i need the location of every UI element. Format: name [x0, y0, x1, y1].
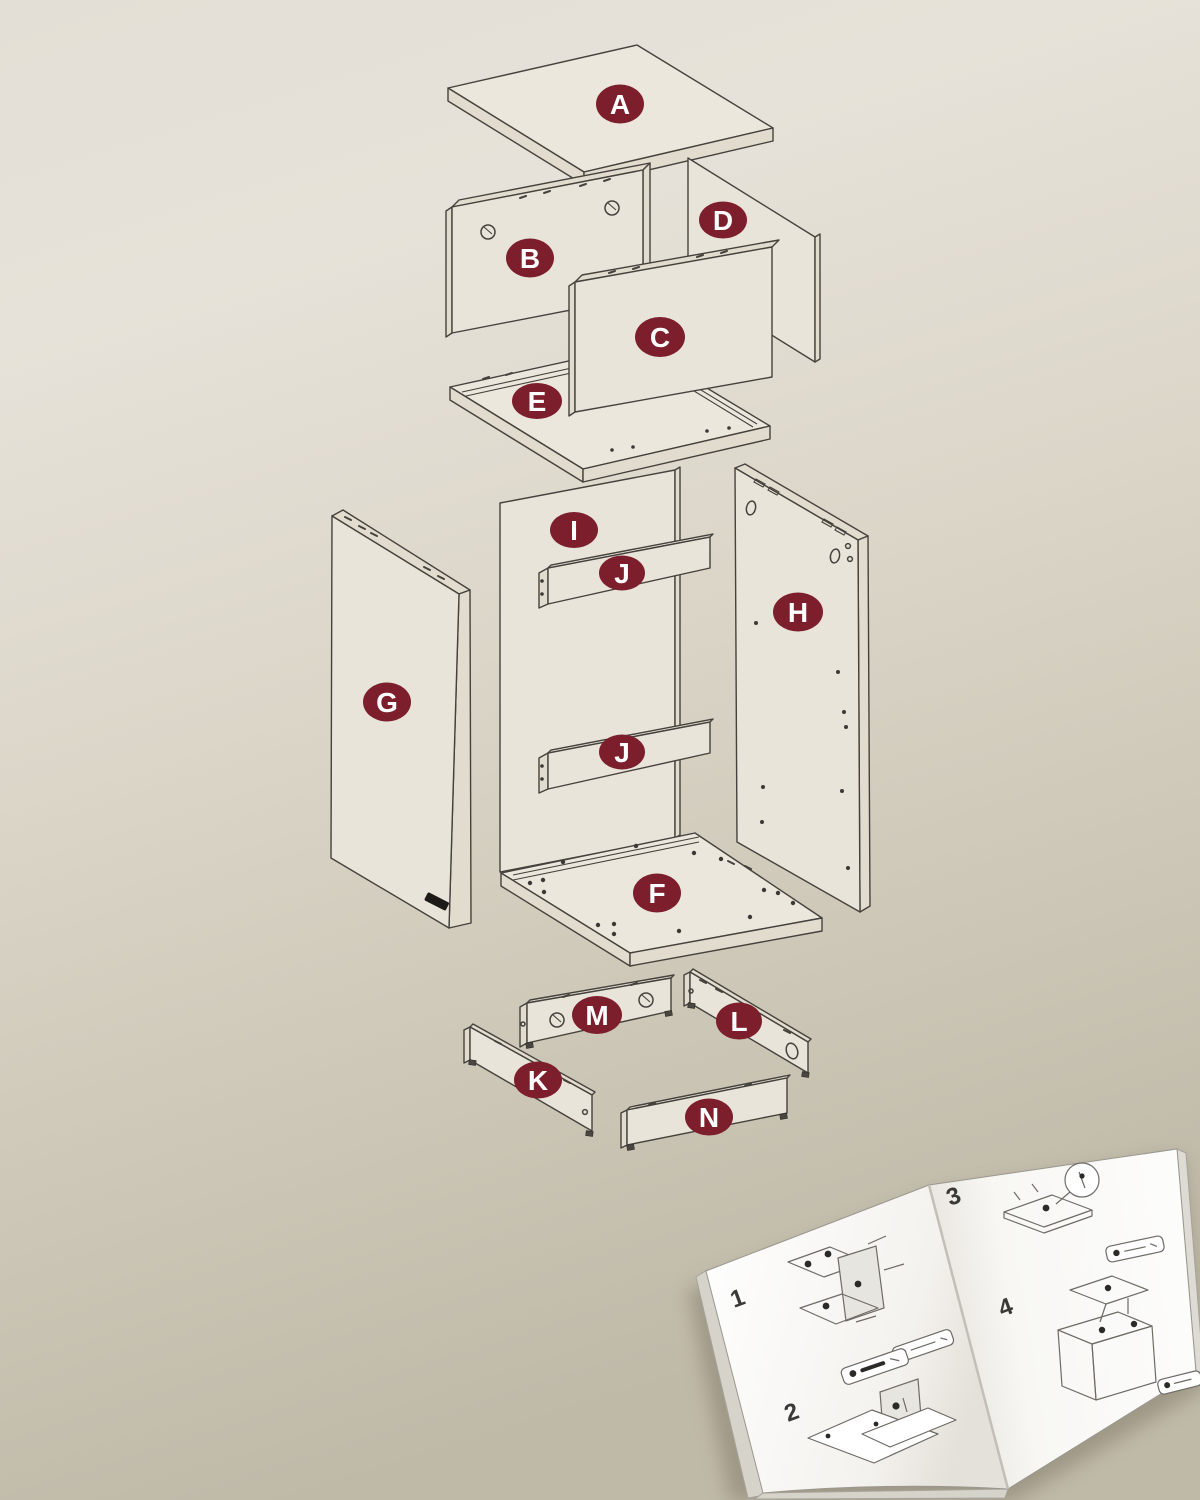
part-label-F: F [633, 874, 681, 913]
svg-text:L: L [730, 1006, 747, 1037]
svg-text:B: B [520, 243, 540, 274]
part-label-J-upper: J [599, 556, 645, 591]
svg-text:J: J [614, 737, 630, 768]
part-label-B: B [506, 239, 554, 278]
svg-text:C: C [650, 322, 670, 353]
svg-text:N: N [699, 1102, 719, 1133]
svg-text:A: A [610, 89, 630, 120]
svg-text:G: G [376, 687, 398, 718]
part-label-N: N [685, 1099, 733, 1136]
part-label-A: A [596, 85, 644, 124]
svg-text:I: I [570, 515, 578, 546]
svg-text:K: K [528, 1065, 548, 1096]
part-label-K: K [514, 1062, 562, 1099]
part-label-C: C [635, 317, 685, 357]
part-label-I: I [550, 512, 598, 548]
svg-text:E: E [528, 386, 547, 417]
svg-text:D: D [713, 205, 733, 236]
svg-text:J: J [614, 558, 630, 589]
exploded-diagram-canvas: A B C D E F G H I J J K L M N 1 [0, 0, 1200, 1500]
part-label-H: H [773, 593, 823, 632]
svg-text:H: H [788, 597, 808, 628]
assembly-diagram-page: A B C D E F G H I J J K L M N 1 [0, 0, 1200, 1500]
part-label-M: M [572, 996, 622, 1034]
part-label-J-lower: J [599, 735, 645, 770]
part-label-E: E [512, 383, 562, 419]
part-label-L: L [716, 1003, 762, 1040]
svg-text:M: M [585, 1000, 608, 1031]
svg-text:F: F [648, 878, 665, 909]
part-label-D: D [699, 202, 747, 239]
part-label-G: G [363, 683, 411, 722]
part-lower-side-panel [735, 464, 870, 912]
